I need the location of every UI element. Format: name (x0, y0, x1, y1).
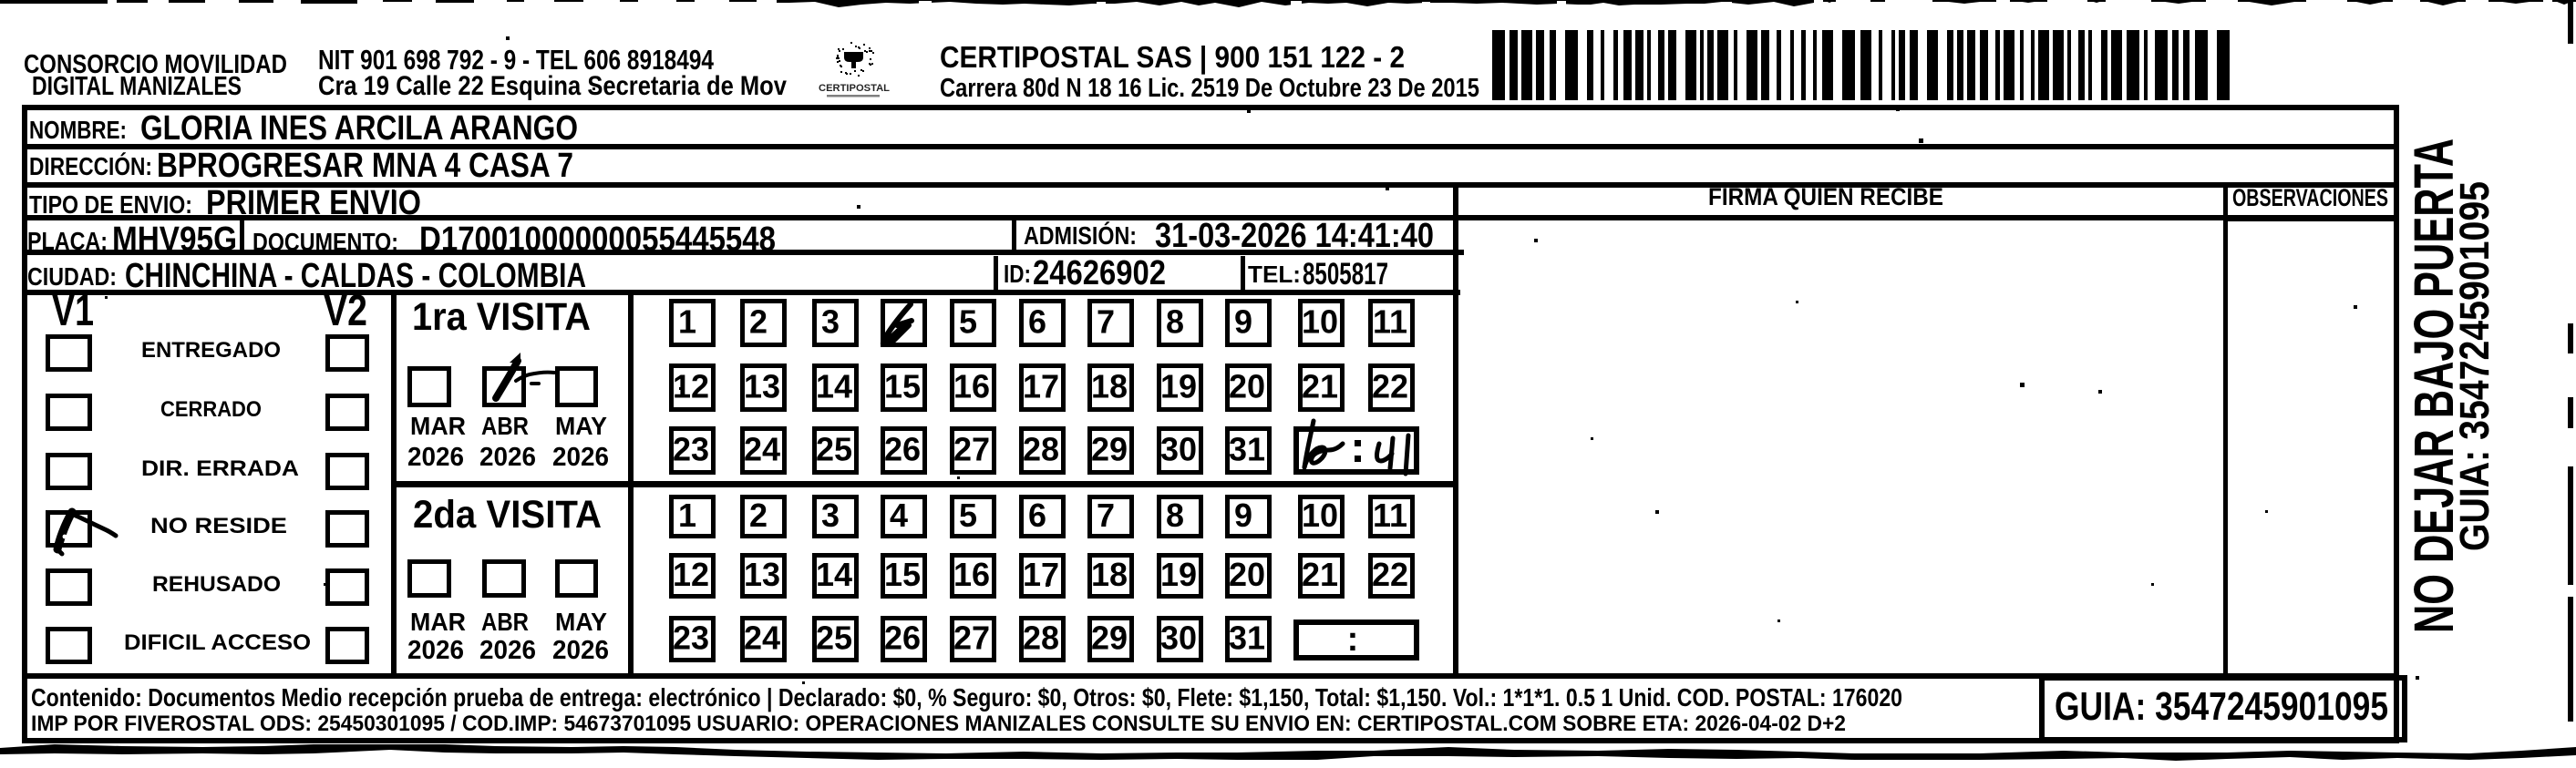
svg-text:8505817: 8505817 (1303, 257, 1388, 292)
svg-text:NOMBRE:: NOMBRE: (29, 116, 127, 144)
svg-text:GUIA: 3547245901095: GUIA: 3547245901095 (2055, 684, 2388, 729)
svg-text:16: 16 (953, 368, 990, 405)
svg-text:12: 12 (673, 556, 709, 593)
svg-text:24626902: 24626902 (1033, 254, 1166, 292)
svg-text:3: 3 (821, 303, 840, 341)
svg-text:9: 9 (1234, 497, 1252, 534)
svg-text:Contenido: Documentos Medio re: Contenido: Documentos Medio recepción pr… (31, 683, 1902, 712)
svg-text:20: 20 (1229, 556, 1265, 593)
svg-text:MAY: MAY (555, 412, 607, 440)
svg-text:PLACA:: PLACA: (27, 227, 108, 255)
svg-text:MHV95G: MHV95G (112, 220, 237, 259)
svg-text:6: 6 (1028, 497, 1046, 534)
svg-text:14: 14 (816, 556, 852, 593)
svg-text:19: 19 (1160, 368, 1197, 405)
svg-text:CERTIPOSTAL SAS | 900 151 122: CERTIPOSTAL SAS | 900 151 122 - 2 (940, 40, 1405, 74)
svg-text:2026: 2026 (552, 443, 609, 472)
svg-text:TEL:: TEL: (1248, 261, 1301, 288)
svg-text:IMP POR FIVEROSTAL ODS: 254503: IMP POR FIVEROSTAL ODS: 25450301095 / CO… (31, 712, 1846, 736)
svg-text:FIRMA QUIEN RECIBE: FIRMA QUIEN RECIBE (1708, 183, 1943, 210)
svg-text:6: 6 (1028, 303, 1046, 341)
svg-text:D17001000000055445548: D17001000000055445548 (419, 220, 776, 259)
svg-text:18: 18 (1091, 368, 1128, 405)
svg-text:2026: 2026 (479, 443, 536, 472)
svg-text:13: 13 (744, 556, 780, 593)
svg-text:11: 11 (1373, 497, 1407, 534)
svg-text:17: 17 (1023, 556, 1059, 593)
svg-text:GLORIA INES ARCILA ARANGO: GLORIA INES ARCILA ARANGO (140, 109, 578, 148)
svg-text:PRIMER ENVIO: PRIMER ENVIO (206, 184, 421, 222)
svg-text:28: 28 (1023, 620, 1059, 657)
svg-text:CERTIPOSTAL: CERTIPOSTAL (819, 83, 890, 94)
svg-text:CERRADO: CERRADO (160, 397, 262, 422)
svg-text:8: 8 (1166, 497, 1184, 534)
svg-text:7: 7 (1097, 497, 1115, 534)
svg-text:5: 5 (959, 303, 977, 341)
svg-text:3: 3 (821, 497, 840, 534)
svg-text:ENTREGADO: ENTREGADO (141, 338, 281, 363)
svg-text:25: 25 (816, 620, 852, 657)
svg-text:16: 16 (953, 556, 990, 593)
svg-text:27: 27 (953, 620, 990, 657)
svg-text:11: 11 (1373, 303, 1407, 341)
svg-text:7: 7 (1097, 303, 1115, 341)
svg-text:V2: V2 (324, 287, 367, 335)
svg-text:10: 10 (1302, 303, 1338, 341)
svg-text:19: 19 (1160, 556, 1197, 593)
svg-text:27: 27 (953, 431, 990, 468)
svg-text:10: 10 (1302, 497, 1338, 534)
svg-text:MAR: MAR (410, 412, 466, 440)
svg-text:Carrera 80d N 18 16 Lic. 2519: Carrera 80d N 18 16 Lic. 2519 De Octubre… (940, 74, 1479, 103)
svg-text:15: 15 (884, 556, 921, 593)
svg-text:24: 24 (744, 620, 780, 657)
svg-text::: : (1347, 620, 1359, 659)
svg-text:17: 17 (1023, 368, 1059, 405)
svg-text:21: 21 (1302, 556, 1338, 593)
svg-text:22: 22 (1372, 368, 1408, 405)
svg-text:23: 23 (673, 431, 709, 468)
svg-text:2: 2 (749, 497, 768, 534)
svg-text:MAR: MAR (410, 608, 466, 636)
svg-text:2026: 2026 (407, 636, 464, 665)
svg-text:DIR. ERRADA: DIR. ERRADA (141, 456, 299, 481)
svg-text:28: 28 (1023, 431, 1059, 468)
svg-text:31: 31 (1229, 431, 1265, 468)
svg-text:BPROGRESAR MNA 4 CASA 7: BPROGRESAR MNA 4 CASA 7 (157, 147, 573, 185)
svg-text:Cra 19 Calle 22 Esquina Secret: Cra 19 Calle 22 Esquina Secretaria de Mo… (318, 71, 787, 101)
svg-text:NO RESIDE: NO RESIDE (150, 514, 287, 538)
svg-text:2da VISITA: 2da VISITA (413, 493, 602, 537)
svg-text:21: 21 (1302, 368, 1338, 405)
svg-text:24: 24 (744, 431, 780, 468)
svg-text:1: 1 (678, 497, 696, 534)
svg-text:REHUSADO: REHUSADO (152, 572, 281, 597)
svg-text:ABR: ABR (481, 608, 529, 636)
svg-text:25: 25 (816, 431, 852, 468)
svg-text:13: 13 (744, 368, 780, 405)
svg-text:4: 4 (890, 497, 908, 534)
svg-text:2026: 2026 (407, 443, 464, 472)
svg-text:31: 31 (1229, 620, 1265, 657)
svg-text:31-03-2026 14:41:40: 31-03-2026 14:41:40 (1155, 217, 1434, 255)
svg-text:OBSERVACIONES: OBSERVACIONES (2232, 184, 2388, 211)
svg-text:29: 29 (1091, 620, 1128, 657)
svg-text:5: 5 (959, 497, 977, 534)
svg-text:9: 9 (1234, 303, 1252, 341)
svg-text:ABR: ABR (481, 412, 529, 440)
svg-text:DIGITAL MANIZALES: DIGITAL MANIZALES (32, 72, 242, 101)
svg-text:2: 2 (749, 303, 768, 341)
svg-text:22: 22 (1372, 556, 1408, 593)
svg-text:14: 14 (816, 368, 852, 405)
svg-text:26: 26 (884, 620, 921, 657)
svg-text:26: 26 (884, 431, 921, 468)
svg-text:30: 30 (1160, 620, 1197, 657)
svg-text:ID:: ID: (1004, 260, 1031, 288)
svg-text:DIRECCIÓN:: DIRECCIÓN: (29, 152, 152, 180)
svg-text:DIFICIL ACCESO: DIFICIL ACCESO (124, 630, 311, 655)
svg-text:DOCUMENTO:: DOCUMENTO: (252, 228, 398, 256)
svg-text:20: 20 (1229, 368, 1265, 405)
svg-text:29: 29 (1091, 431, 1128, 468)
svg-text:MAY: MAY (555, 608, 607, 636)
svg-text:18: 18 (1091, 556, 1128, 593)
svg-text:GUIA: 3547245901095: GUIA: 3547245901095 (2451, 181, 2498, 551)
svg-text:15: 15 (884, 368, 921, 405)
svg-text:2026: 2026 (552, 636, 609, 665)
svg-text:V1: V1 (52, 287, 94, 335)
svg-text:TIPO DE ENVIO:: TIPO DE ENVIO: (29, 190, 192, 219)
svg-text:30: 30 (1160, 431, 1197, 468)
svg-text:1ra VISITA: 1ra VISITA (412, 295, 591, 339)
svg-text:1: 1 (678, 303, 696, 341)
svg-text:23: 23 (673, 620, 709, 657)
svg-text:2026: 2026 (479, 636, 536, 665)
svg-text:8: 8 (1166, 303, 1184, 341)
svg-text:ADMISIÓN:: ADMISIÓN: (1024, 221, 1137, 250)
svg-text:12: 12 (673, 368, 709, 405)
